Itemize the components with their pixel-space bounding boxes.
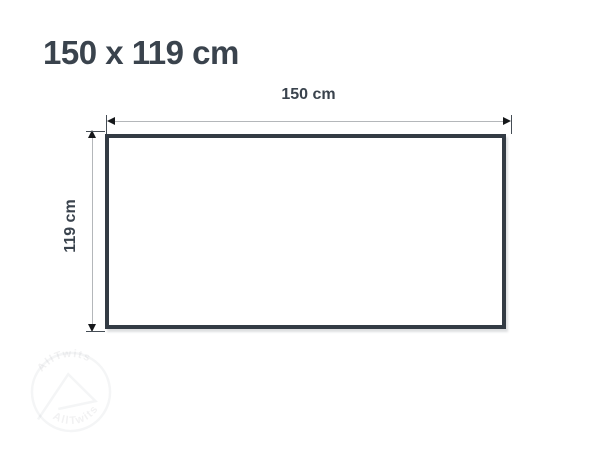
height-dimension-line xyxy=(92,137,93,326)
height-extension-tick-top xyxy=(86,131,105,132)
width-extension-tick-left xyxy=(106,115,107,134)
width-extension-tick-right xyxy=(511,115,512,134)
dimension-diagram: 150 x 119 cm 150 cm 119 cm AllTwits xyxy=(0,0,607,455)
measured-rectangle xyxy=(105,134,506,329)
dimension-arrow-right-icon xyxy=(503,117,511,125)
watermark-group: AllTwits AllTwits xyxy=(24,340,118,438)
watermark-stamp: AllTwits AllTwits xyxy=(16,336,126,448)
watermark-text-top: AllTwits xyxy=(33,342,96,375)
height-dimension-label: 119 cm xyxy=(62,199,80,252)
page-title: 150 x 119 cm xyxy=(43,34,239,72)
height-extension-tick-bottom xyxy=(86,331,105,332)
width-dimension-label: 150 cm xyxy=(105,86,512,104)
dimension-arrow-left-icon xyxy=(107,117,115,125)
width-dimension-line xyxy=(113,121,504,122)
